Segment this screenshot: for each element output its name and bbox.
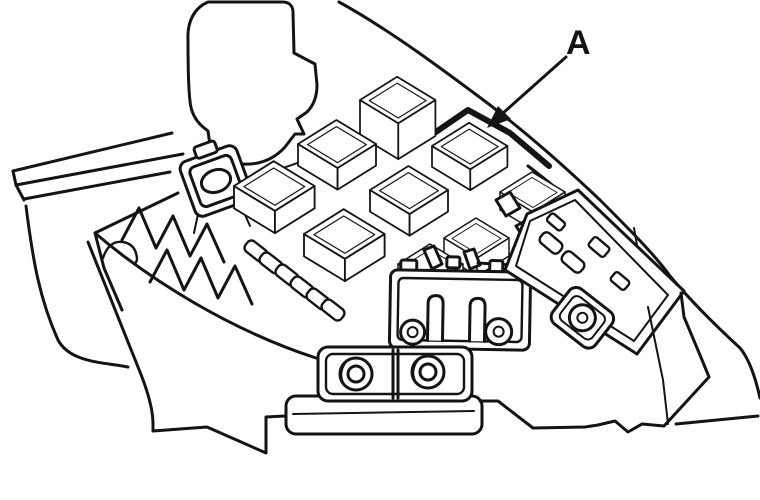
- lower-left-crease: [88, 242, 285, 453]
- fuse-terminal: [485, 318, 511, 344]
- mini-fuse: [320, 297, 347, 322]
- fuse-block-prong: [427, 295, 443, 340]
- callout-label-a: A: [566, 24, 591, 62]
- figure-page: A: [0, 0, 760, 500]
- fuse-terminal: [400, 320, 424, 344]
- body-crease-right: [670, 276, 760, 398]
- figure-canvas: A: [0, 0, 760, 500]
- relay-cube: [304, 209, 385, 281]
- bottom-right-body-line: [676, 416, 758, 424]
- cowl-line-middle: [16, 154, 183, 185]
- fuse-block-prong: [469, 298, 485, 341]
- right-fuse-tray: [505, 190, 684, 354]
- relay-cube: [370, 166, 448, 236]
- bolt-terminal-bracket: [286, 347, 482, 434]
- fuse-block-tab: [447, 257, 460, 268]
- cowl-line-lower: [24, 172, 170, 199]
- relay-cube: [432, 123, 507, 190]
- reservoir-silhouette: [188, 2, 317, 164]
- cowl-line-upper: [13, 133, 172, 171]
- callout-a: A: [487, 24, 591, 128]
- callout-arrow-line: [502, 57, 566, 114]
- socket-zigzag-row-2: [150, 250, 252, 304]
